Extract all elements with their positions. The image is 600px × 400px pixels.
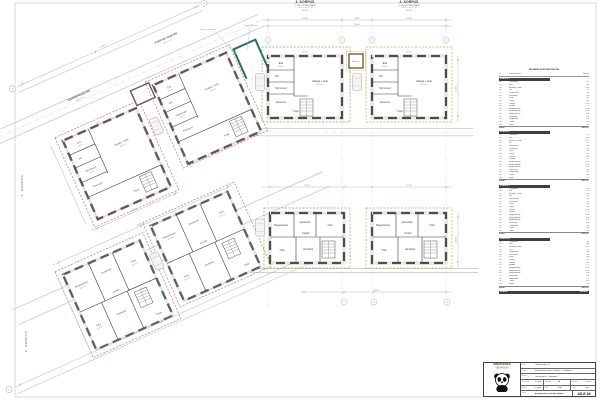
note-text: Prügi- ja rattamaja (200, 28, 216, 31)
table-section-total: Kokku146.8 m² (499, 232, 589, 236)
dim-chain-bl-bottom: 43850 C D (0, 171, 336, 397)
dim-chain-bottom: 14900 2 3 4 (300, 290, 452, 305)
field-value: U. Karu (535, 387, 543, 389)
plan-title-korpus-4: 4. KORPUS 1. ja 2. korruse plaan ±0.00 =… (363, 1, 455, 12)
svg-text:Tuba: Tuba (327, 225, 333, 227)
korpus-4-ground: Terass (366, 47, 452, 122)
dim-chain-top: 12750 2800 12750 28300 (262, 18, 452, 27)
svg-text:8.6 m²: 8.6 m² (278, 65, 284, 68)
total-cell: 146.5 m² (571, 180, 589, 183)
side-label-korpus-2: 2. KORPUS (24, 331, 28, 352)
korpus-2-group: 18200 Magamistuba 14.8 m² Garderoob Tuba… (0, 156, 336, 398)
grand-total-cell: KOKKU (500, 291, 507, 294)
drawing-name: Asendiplaan ja korruste plaanid (535, 393, 572, 395)
table-cell: Rõdu (509, 283, 575, 286)
svg-text:Tuba: Tuba (279, 250, 285, 252)
date-value: 11.2023 (585, 381, 595, 383)
car-icon (256, 219, 265, 236)
total-cell: Kokku (499, 127, 535, 130)
korpus-3-ground: Terass Esik 8.6 m² WC Tehnoruum Pesuruum… (262, 47, 350, 122)
scale-label: Mõõt (544, 388, 558, 389)
stage-cell: Staadium EP (543, 380, 570, 385)
date-label: Kuupäev (571, 382, 585, 383)
svg-text:Elutuba + köök: Elutuba + köök (312, 80, 328, 83)
scale-cell: Mõõt 1:50 (543, 386, 570, 391)
dim-text: 12750 (406, 18, 413, 20)
table-cell: 208 (499, 177, 509, 180)
car-icon (353, 74, 362, 91)
field-value: Pandale Kodu OÜ (535, 364, 595, 366)
table-cell: 208 (499, 283, 509, 286)
svg-text:Tehnoruum: Tehnoruum (275, 87, 287, 90)
shed-label: Abihoone (352, 60, 359, 63)
dim-text: 28300 (354, 24, 361, 26)
table-row: 208Rõdu5.6 (499, 177, 589, 180)
table-cell: Rõdu (509, 177, 575, 180)
scale-value: 1:50 (558, 387, 570, 389)
total-cell: 146.8 m² (571, 127, 589, 130)
korpus-1-group: 41250 A B KVARTALI SISETEE laius 5.5 m J… (0, 0, 334, 325)
drawing-sheet: 41250 A B KVARTALI SISETEE laius 5.5 m J… (0, 0, 600, 400)
svg-text:Pesuruum: Pesuruum (276, 101, 287, 104)
worknr-cell: Töö nr 2318 (570, 386, 595, 391)
car-icon (256, 74, 265, 91)
table-section-total: Kokku146.8 m² (499, 126, 589, 130)
building-a1: Terass Esik 8.6 m² WC Tehnoruum 5.8 m² P… (55, 100, 179, 227)
dim-text: 12750 (302, 18, 309, 20)
total-cell: Kokku (499, 180, 535, 183)
title-block-fields: Tellija Pandale Kodu OÜ Projekt Ridaelam… (521, 363, 595, 396)
field-label: Tellija (521, 365, 535, 366)
column-header: Ruumi nimetus (509, 73, 575, 76)
dim-chain-right: 12450 10150 (456, 56, 460, 268)
dim-text: 14900 (373, 290, 380, 292)
table-row: 208Rõdu5.6 (499, 124, 589, 127)
column-header: Pind m² (575, 73, 589, 76)
shed-between (130, 83, 155, 106)
total-cell: 146.5 m² (571, 287, 589, 290)
plan-title-scale: M 1:50 (259, 10, 351, 12)
svg-text:29.4 m²: 29.4 m² (317, 83, 324, 86)
annotation-notes: Prügi- ja rattamaja Olemasolev puu (200, 25, 258, 56)
carport-teal (233, 40, 268, 79)
total-cell (535, 287, 571, 290)
total-cell (535, 233, 571, 236)
date-cell: Kuupäev 11.2023 (570, 380, 595, 385)
axis-bubbles-top: 1 2 3 4 (265, 37, 449, 43)
table-column-headers: NrRuumi nimetusPind m² (499, 73, 589, 77)
dim-text: 12750 (406, 185, 413, 187)
table-cell: 208 (499, 230, 509, 233)
title-block: ARHIPANDA PROJEKT OÜ Reg nr 12345678 Tel… (483, 362, 596, 397)
svg-text:Magamistuba: Magamistuba (274, 224, 289, 227)
terrace-label: Terass (406, 51, 412, 53)
field-label: Projektijuht (521, 382, 535, 383)
field-value: Pandakarja tn 7, Harjumaa (535, 376, 595, 378)
korpus-4-upper (366, 208, 452, 268)
table-cell: 5.6 (575, 283, 589, 286)
company-reg: Reg nr 12345678 (484, 369, 520, 371)
car-icon (149, 116, 164, 135)
side-label-korpus-1: 1. KORPUS (20, 175, 24, 196)
dim-text: 12750 (304, 185, 311, 187)
worknr-label: Töö nr (571, 388, 585, 389)
stage-value: EP (558, 381, 570, 383)
svg-text:Koridor: Koridor (302, 232, 310, 235)
room-schedule-table: RUUMIDE EKSPLIKATSIOONNrRuumi nimetusPin… (499, 69, 589, 294)
note-text: Olemasolev puu (244, 25, 258, 27)
table-section-total: Kokku146.5 m² (499, 179, 589, 183)
korpus-3-upper: Magamistuba Garderoob Tuba Koridor Tuba … (264, 208, 350, 268)
field-label: Aadress (521, 376, 535, 377)
svg-text:Trepp: Trepp (293, 110, 300, 113)
drawing-code: AS-E-04 (572, 391, 595, 396)
total-cell (535, 127, 571, 130)
table-grand-total: KOKKU586.6 m² (499, 291, 589, 295)
field-label: Projekt (521, 371, 535, 372)
dim-text: 2800 (355, 18, 360, 20)
company-cell: ARHIPANDA PROJEKT OÜ Reg nr 12345678 (484, 363, 521, 396)
table-section-total: Kokku146.5 m² (499, 286, 589, 290)
total-cell: Kokku (499, 287, 535, 290)
svg-text:Vannituba: Vannituba (303, 248, 314, 251)
shed-top: Abihoone (347, 52, 366, 71)
dim-text: 10150 (456, 236, 458, 243)
table-cell: 5.6 (575, 124, 589, 127)
road-top (246, 128, 473, 136)
worknr-value: 2318 (585, 387, 595, 389)
field-label: Joonis (521, 393, 535, 394)
building-a2 (145, 45, 267, 168)
field-value: M. Ilves (535, 381, 543, 383)
total-cell (535, 180, 571, 183)
road-middle (246, 269, 478, 273)
table-cell: 5.6 (575, 177, 589, 180)
terrace-label: Terass (302, 51, 308, 53)
panda-logo-icon (492, 372, 512, 392)
total-cell: Kokku (499, 233, 535, 236)
field-value: Ridaelamute kvartal, 4 korpust — eelproj… (535, 370, 595, 372)
table-cell: Rõdu (509, 230, 575, 233)
table-cell: Rõdu (509, 124, 575, 127)
dim-text: 12450 (456, 85, 458, 92)
stage-label: Staadium (544, 382, 558, 383)
grand-total-cell: 586.6 m² (580, 291, 588, 294)
table-row: 208Rõdu5.6 (499, 283, 589, 286)
table-cell: 208 (499, 124, 509, 127)
table-row: 208Rõdu5.6 (499, 230, 589, 233)
plan-title-korpus-3: 3. KORPUS 1. ja 2. korruse plaan ±0.00 =… (259, 1, 351, 12)
field-label: Arhitekt (521, 388, 535, 389)
svg-text:WC: WC (275, 76, 279, 78)
total-cell: 146.8 m² (571, 233, 589, 236)
field-row: Joonis Asendiplaan ja korruste plaanid A… (521, 391, 595, 396)
plan-title-scale: M 1:50 (363, 10, 455, 12)
svg-text:Garderoob: Garderoob (300, 221, 312, 224)
column-header: Nr (499, 73, 509, 76)
